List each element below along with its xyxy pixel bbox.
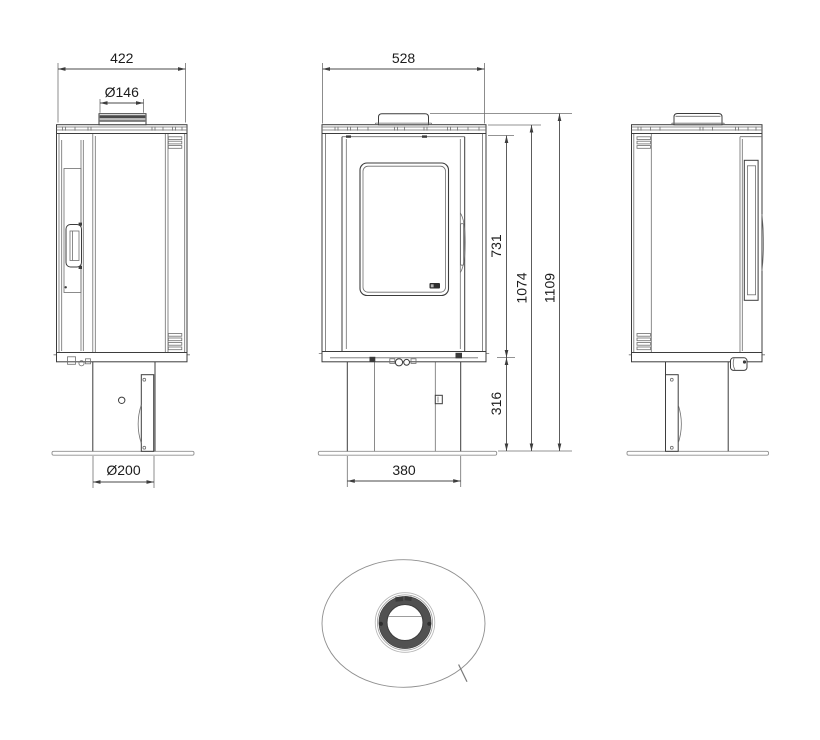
bottom-plate [319,352,489,366]
door-hinge-top [422,135,427,137]
bottom-plate [54,353,191,366]
door-handle [66,223,82,269]
dim-flue-diameter: Ø146 [100,84,144,113]
pedestal [666,362,729,452]
door-hinge-top [346,135,351,137]
flue-collar-ring [375,593,435,653]
svg-text:316: 316 [488,392,504,416]
svg-text:1109: 1109 [542,273,558,303]
pedestal-hole [119,397,125,403]
bottom-plate [629,353,765,371]
top-view [322,560,485,688]
dim-total-height: 1109 [542,114,560,452]
front-view [318,114,496,456]
pedestal [93,362,155,452]
latch-dot [65,286,67,288]
left-side-view [52,114,194,456]
floor-plate [318,451,496,455]
technical-drawing-canvas: 422 Ø146 528 731 316 1074 [0,0,820,740]
ring-tab [405,596,412,601]
svg-text:Ø146: Ø146 [105,84,139,100]
dim-pedestal-depth: Ø200 [93,456,154,488]
svg-text:380: 380 [392,462,416,478]
svg-text:528: 528 [392,50,416,66]
door-latch-bracket [731,358,748,371]
flue-collar [99,114,146,125]
flue-collar [672,114,724,125]
top-plate [57,125,188,134]
dim-firebox-height: 731 [488,136,507,358]
floor-plate [52,451,194,455]
ring-tab [395,596,403,601]
top-plate [632,125,763,134]
svg-text:1074: 1074 [514,272,530,303]
flue-collar [376,114,432,125]
stove-body [322,134,486,352]
svg-text:731: 731 [488,234,504,258]
pedestal-knob [435,395,442,403]
ring-rivet-right [427,622,431,626]
svg-text:422: 422 [110,50,134,66]
stove-body [632,134,764,353]
top-plate [322,125,486,134]
floor-plate [627,451,769,455]
dim-pedestal-height: 316 [488,358,507,452]
brand-logo-mark [430,283,441,289]
svg-text:Ø200: Ø200 [106,462,140,478]
rear-access-panel [141,375,153,452]
stove-body [57,134,188,353]
right-side-view [627,114,769,456]
dim-pedestal-width: 380 [347,456,460,487]
pedestal [347,362,460,452]
ring-rivet-left [379,622,383,626]
dim-top-plate-width: 528 [323,50,485,124]
rear-access-panel [666,375,679,452]
stove-dimension-drawing: 422 Ø146 528 731 316 1074 [0,0,820,740]
dim-body-height: 1074 [514,125,532,451]
